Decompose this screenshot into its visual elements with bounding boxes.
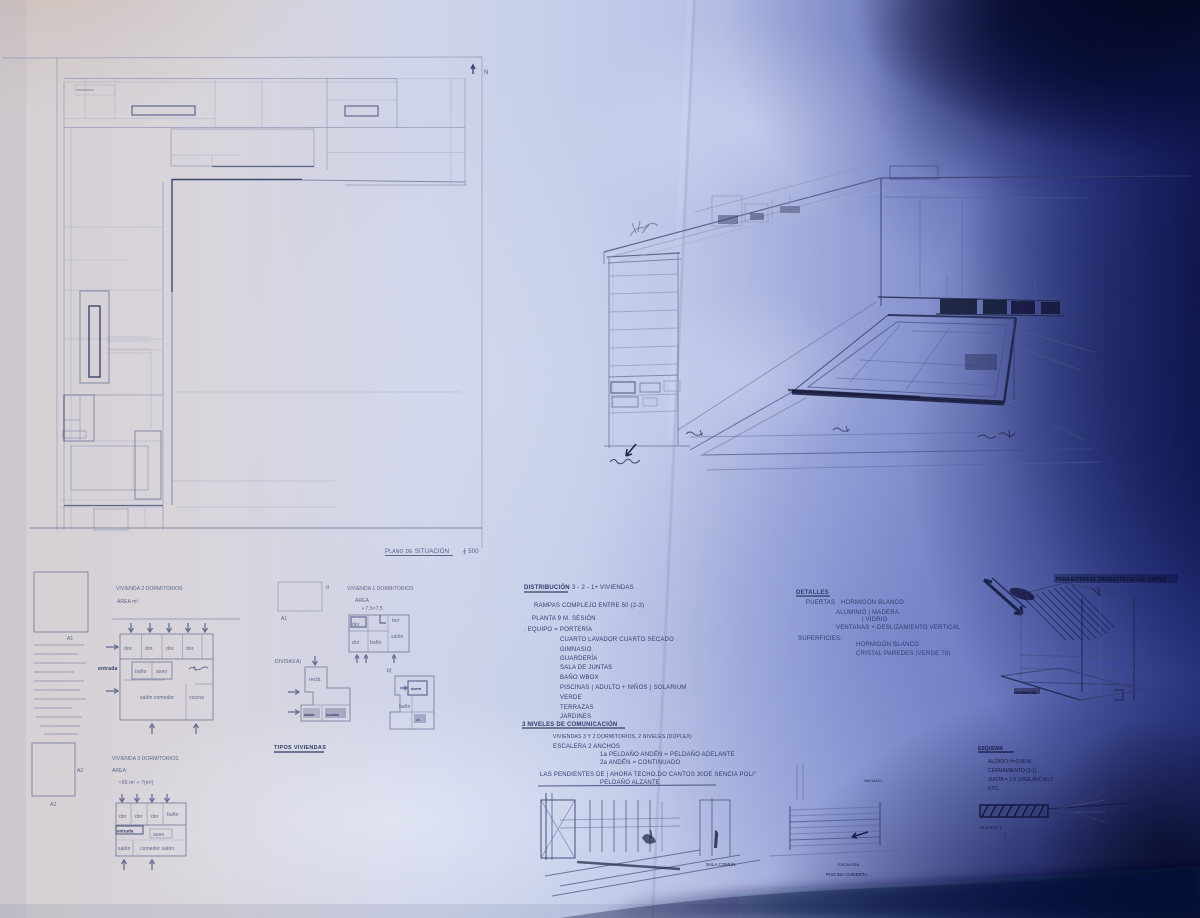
svg-text:CUARTO LAVADOR CUARTO SECADO: CUARTO LAVADOR CUARTO SECADO <box>560 637 674 643</box>
svg-text:salón: salón <box>391 634 404 640</box>
svg-text:dor: dor <box>352 640 360 646</box>
svg-text:dor.: dor. <box>145 646 154 652</box>
svg-text:ÁREA:: ÁREA: <box>112 767 128 774</box>
svg-text:JARDINES: JARDINES <box>560 714 591 720</box>
svg-text:dorm: dorm <box>411 686 421 691</box>
svg-text:3 NIVELES DE COMUNICACIÓN: 3 NIVELES DE COMUNICACIÓN <box>522 720 617 728</box>
svg-text:ALUMINIO | MADERA: ALUMINIO | MADERA <box>836 610 899 616</box>
svg-text:recib.: recib. <box>309 677 322 683</box>
svg-text:VIVIENDA 1 DORMITORIOS: VIVIENDA 1 DORMITORIOS <box>347 586 414 592</box>
svg-text:comedor salón: comedor salón <box>140 846 174 852</box>
svg-text:ESCALERA 2 ANCHOS: ESCALERA 2 ANCHOS <box>553 744 620 750</box>
svg-text:salón comedor: salón comedor <box>140 695 174 701</box>
svg-text:• 7,5×7,5: • 7,5×7,5 <box>362 606 383 612</box>
svg-text:BAÑO WBOX: BAÑO WBOX <box>560 674 599 681</box>
svg-text:dor.: dor. <box>166 646 175 652</box>
svg-text:aseo: aseo <box>156 669 167 675</box>
svg-text:baño: baño <box>167 812 179 818</box>
svg-text:ALZADO 1: ALZADO 1 <box>980 825 1002 830</box>
svg-text:CRISTAL PAREDES (VERDE 78): CRISTAL PAREDES (VERDE 78) <box>856 651 950 657</box>
svg-text:aseo: aseo <box>153 832 164 838</box>
svg-text:terr: terr <box>392 618 400 624</box>
svg-text:ÁREA: ÁREA <box>355 597 370 604</box>
svg-text:CERRAMIENTO (1:1): CERRAMIENTO (1:1) <box>988 768 1037 774</box>
svg-text:salón: salón <box>118 846 131 852</box>
svg-text:cocina: cocina <box>326 712 339 717</box>
svg-text:A): A) <box>296 659 301 665</box>
svg-text:1a PELDAÑO ANDÉN = PELDAÑO A: 1a PELDAÑO ANDÉN = PELDAÑO ADELANTE <box>600 751 735 758</box>
svg-text:dor.: dor. <box>186 646 195 652</box>
svg-text:DETALLES: DETALLES <box>796 590 829 596</box>
svg-text:2a ANDÉN = CONTINUADO: 2a ANDÉN = CONTINUADO <box>600 759 681 766</box>
svg-text:≈65 m² + 7(m²): ≈65 m² + 7(m²) <box>119 780 154 786</box>
svg-text:VIVIENDAS 3 Y 2 DORMITORIOS,: VIVIENDAS 3 Y 2 DORMITORIOS, 2 NIVELES (… <box>553 733 692 740</box>
svg-text:HORMIGÓN: HORMIGÓN <box>1014 690 1037 695</box>
svg-text:ÁREA m²: ÁREA m² <box>117 598 138 605</box>
svg-text:d: d <box>326 585 329 591</box>
svg-text:b): b) <box>387 668 392 674</box>
svg-text:3 - 2 - 1+ VIVIENDAS: 3 - 2 - 1+ VIVIENDAS <box>572 585 634 591</box>
svg-text:entrada: entrada <box>98 666 117 672</box>
svg-text:PLANTA 9 M. SESIÓN: PLANTA 9 M. SESIÓN <box>532 615 596 622</box>
svg-text:A1: A1 <box>281 616 287 622</box>
svg-text:salón: salón <box>304 712 315 717</box>
svg-text:PISCINAS ( ADULTO + NIÑOS ) SO: PISCINAS ( ADULTO + NIÑOS ) SOLARIUM <box>560 684 687 691</box>
svg-text:dor: dor <box>135 814 143 820</box>
svg-text:TERRAZAS: TERRAZAS <box>560 705 594 711</box>
svg-text:DIVISAS: DIVISAS <box>275 659 296 665</box>
svg-text:ETC.: ETC. <box>988 786 999 792</box>
svg-text:| VIDRIO: | VIDRIO <box>862 617 888 623</box>
svg-text:wc: wc <box>416 718 421 722</box>
svg-text:PORTERÍA: PORTERÍA <box>560 626 592 633</box>
svg-text:PLANO DE SITUACIÓN: PLANO DE SITUACIÓN <box>385 548 449 555</box>
svg-text:SALA DE JUNTAS: SALA DE JUNTAS <box>560 665 612 671</box>
svg-text:ALZADO H=3,50 M: ALZADO H=3,50 M <box>988 759 1031 765</box>
svg-text:VIVIENDA 3 DORMITORIOS: VIVIENDA 3 DORMITORIOS <box>112 756 179 762</box>
svg-text:baño: baño <box>135 669 147 675</box>
svg-text:VIVIENDA 2 DORMITORIOS: VIVIENDA 2 DORMITORIOS <box>116 586 183 592</box>
svg-text:PISCINA CUBIERTA: PISCINA CUBIERTA <box>826 872 867 877</box>
svg-text:baño: baño <box>399 704 411 710</box>
svg-text:cocina: cocina <box>189 695 204 701</box>
svg-text:DISTRIBUCIÓN: DISTRIBUCIÓN <box>524 583 570 591</box>
svg-text:HORMIGÓN BLANCO: HORMIGÓN BLANCO <box>841 599 904 606</box>
svg-text:A2: A2 <box>50 802 56 808</box>
svg-text:RAMPAS COMPLEJO ENTRE 50 (: RAMPAS COMPLEJO ENTRE 50 (2-3) <box>534 603 644 609</box>
svg-text:dor.: dor. <box>124 646 133 652</box>
svg-text:TIPOS VIVIENDAS: TIPOS VIVIENDAS <box>274 745 326 751</box>
svg-text:VACIADO: VACIADO <box>864 778 882 783</box>
svg-text:dor: dor <box>119 814 127 820</box>
svg-text:baño: baño <box>370 640 382 646</box>
svg-text:JUNTA = 2,5 (VIGILANCIA) 2: JUNTA = 2,5 (VIGILANCIA) 2 <box>988 777 1053 783</box>
svg-text:dor: dor <box>352 622 360 628</box>
svg-text:N: N <box>484 70 489 76</box>
svg-text:SUPERFICIES:: SUPERFICIES: <box>798 636 842 642</box>
svg-text:entrada: entrada <box>117 829 134 834</box>
svg-text:PUERTAS: PUERTAS <box>806 600 835 606</box>
svg-text:VERDE: VERDE <box>560 695 582 701</box>
svg-text:LAS PENDIENTES DE | AHORA T: LAS PENDIENTES DE | AHORA TECHO.DO CANTO… <box>540 772 757 778</box>
svg-text:HORMIGÓN BLANCO: HORMIGÓN BLANCO <box>856 641 919 648</box>
svg-text:GIMNASIO: GIMNASIO <box>560 647 592 653</box>
svg-text:GUARDERÍA: GUARDERÍA <box>560 655 597 662</box>
svg-text:dor: dor <box>151 814 159 820</box>
svg-text:ESQUEMA: ESQUEMA <box>978 746 1004 752</box>
svg-text:∮ 500: ∮ 500 <box>463 548 479 555</box>
svg-text:. EQUIPO =: . EQUIPO = <box>524 627 558 633</box>
svg-text:A1: A1 <box>67 636 73 642</box>
svg-text:PARA EVITAR EL DESGASTE DE LAS: PARA EVITAR EL DESGASTE DE LAS JUNTAS <box>1056 577 1167 583</box>
svg-text:SALA COMÚN: SALA COMÚN <box>706 861 736 867</box>
svg-text:A2: A2 <box>77 768 83 774</box>
svg-text:ESCALERA: ESCALERA <box>838 862 860 867</box>
svg-text:VENTANAS + DESLIZAMIENTO VERT: VENTANAS + DESLIZAMIENTO VERTICAL <box>836 625 961 631</box>
